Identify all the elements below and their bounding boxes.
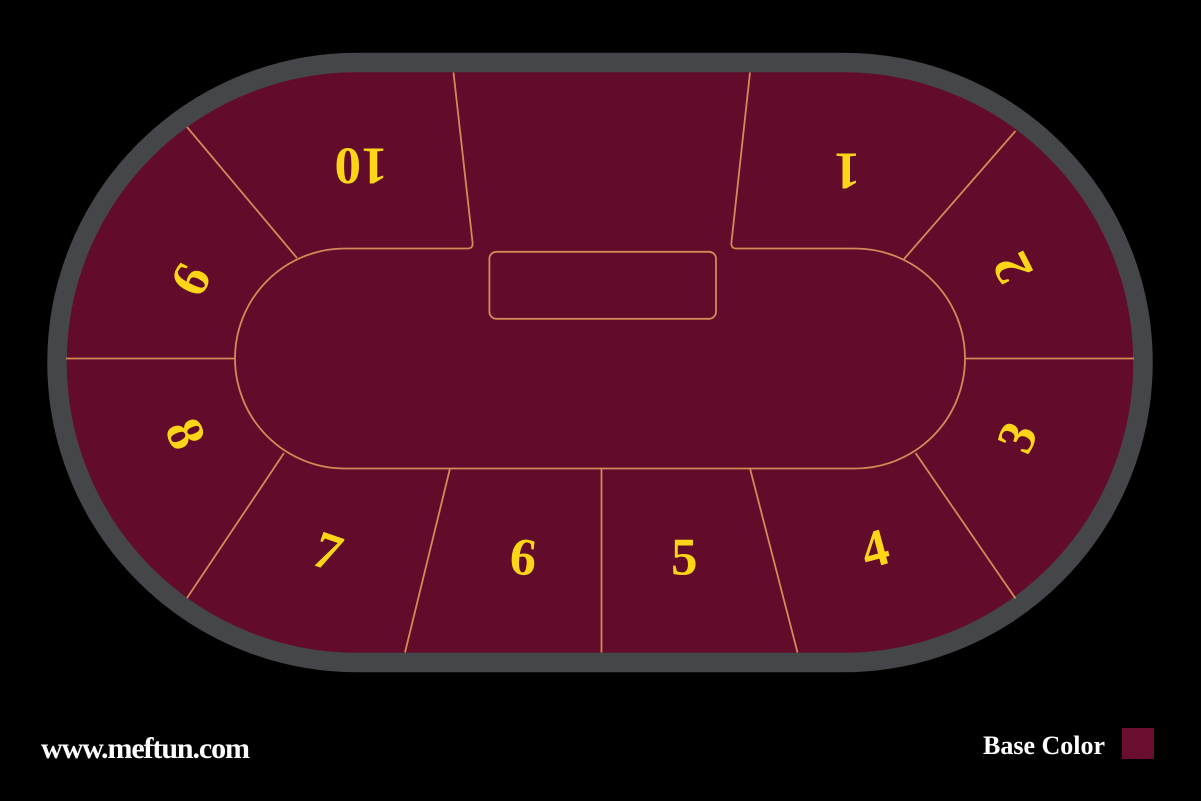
- svg-text:1: 1: [834, 141, 861, 199]
- svg-text:www.meftun.com: www.meftun.com: [41, 732, 250, 765]
- svg-text:10: 10: [335, 136, 388, 194]
- svg-text:Base Color: Base Color: [983, 731, 1105, 760]
- svg-text:5: 5: [671, 529, 698, 587]
